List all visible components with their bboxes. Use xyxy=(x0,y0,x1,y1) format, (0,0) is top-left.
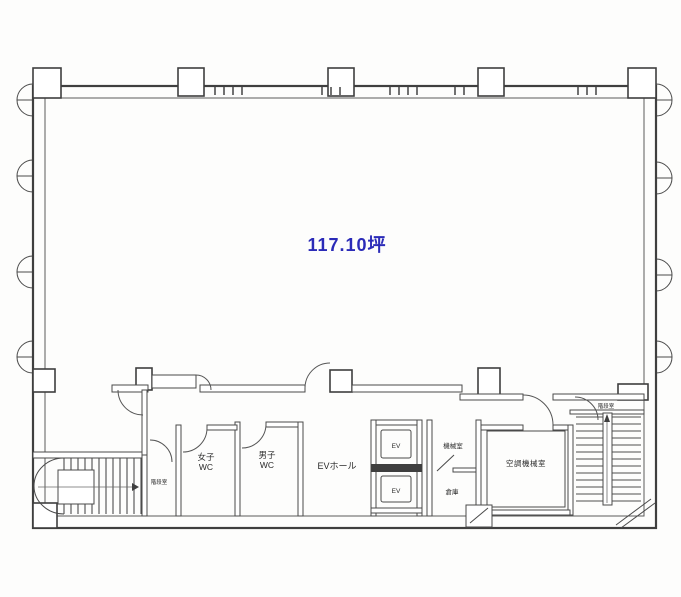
core-partition-walls xyxy=(33,385,644,516)
hvac-room-outline xyxy=(487,431,565,507)
window-bumps-left xyxy=(17,84,33,373)
machine-storage-details xyxy=(437,455,454,471)
room-label-mens-wc: 男子 WC xyxy=(258,450,276,470)
machine-room-label: 機械室 xyxy=(443,441,463,450)
room-label-womens-wc: 女子 WC xyxy=(197,452,215,472)
ev-hall-label: EVホール xyxy=(317,461,356,471)
stairwell-left-label: 階段室 xyxy=(151,478,168,486)
womens-wc-label-line2: WC xyxy=(199,462,213,472)
window-bumps-right xyxy=(656,84,672,373)
womens-wc-label-line1: 女子 xyxy=(197,452,215,462)
elevator-2-label: EV xyxy=(392,488,401,495)
mens-wc-label-line1: 男子 xyxy=(258,450,276,460)
storage-label: 倉庫 xyxy=(446,487,460,496)
elevator-1-label: EV xyxy=(392,443,401,450)
floorplan-drawing: 117.10坪 女子 WC 男子 WC EVホール EV EV 機械室 倉庫 空… xyxy=(0,0,681,597)
stairwell-right xyxy=(576,413,641,505)
hvac-room-label: 空調機械室 xyxy=(506,458,546,468)
window-ticks xyxy=(215,87,596,95)
stairwell-right-label: 階段室 xyxy=(598,402,615,410)
area-label: 117.10坪 xyxy=(307,235,386,255)
floorplan-canvas: 117.10坪 女子 WC 男子 WC EVホール EV EV 機械室 倉庫 空… xyxy=(0,0,681,597)
mens-wc-label-line2: WC xyxy=(260,460,274,470)
